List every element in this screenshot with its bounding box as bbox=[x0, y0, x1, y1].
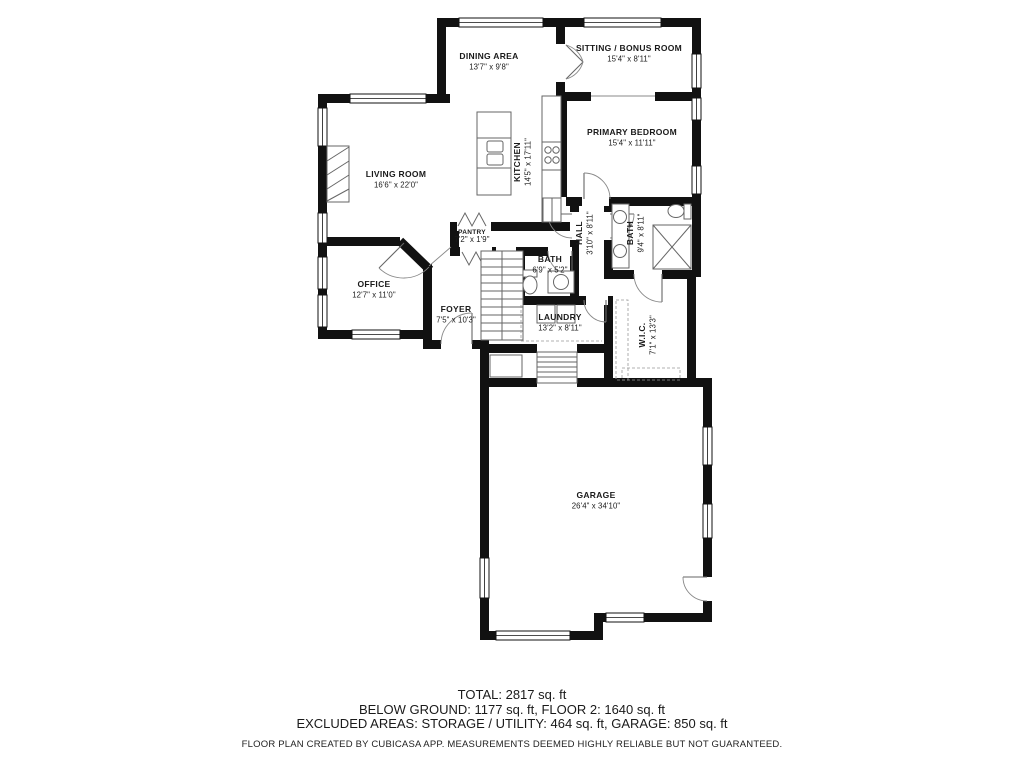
window bbox=[703, 427, 712, 465]
window bbox=[480, 558, 489, 598]
stairs-basement bbox=[537, 352, 577, 383]
window bbox=[318, 213, 327, 243]
toilet-primary-bath bbox=[668, 204, 691, 219]
room-label-kitchen: KITCHEN14'5" x 17'11" bbox=[512, 138, 533, 186]
window bbox=[584, 18, 661, 27]
room-label-pantry: PANTRY7'2" x 1'9" bbox=[454, 229, 489, 244]
storage-closet bbox=[490, 355, 522, 377]
window bbox=[318, 257, 327, 289]
floor-plan-page: DINING AREA13'7" x 9'8"SITTING / BONUS R… bbox=[0, 0, 1024, 768]
window bbox=[692, 98, 701, 120]
window bbox=[318, 108, 327, 146]
window bbox=[692, 166, 701, 194]
room-label-dining-area: DINING AREA13'7" x 9'8" bbox=[459, 51, 518, 72]
door-garage-side bbox=[683, 577, 712, 601]
window bbox=[703, 504, 712, 538]
room-label-sitting-bonus-room: SITTING / BONUS ROOM15'4" x 8'11" bbox=[576, 43, 682, 64]
room-label-office: OFFICE12'7" x 11'0" bbox=[352, 279, 396, 300]
window bbox=[459, 18, 543, 27]
summary-footer: TOTAL: 2817 sq. ft BELOW GROUND: 1177 sq… bbox=[0, 688, 1024, 750]
stairs-main bbox=[481, 251, 523, 340]
kitchen-island bbox=[477, 112, 511, 195]
window bbox=[352, 330, 400, 339]
room-label-garage: GARAGE26'4" x 34'10" bbox=[572, 490, 621, 511]
shower bbox=[653, 225, 691, 269]
room-label-foyer: FOYER7'5" x 10'3" bbox=[436, 304, 476, 325]
room-label-living-room: LIVING ROOM16'6" x 22'0" bbox=[366, 169, 426, 190]
fireplace bbox=[327, 146, 349, 202]
disclaimer-text: FLOOR PLAN CREATED BY CUBICASA APP. MEAS… bbox=[0, 739, 1024, 750]
floors-area-text: BELOW GROUND: 1177 sq. ft, FLOOR 2: 1640… bbox=[0, 703, 1024, 718]
window bbox=[318, 295, 327, 327]
door-wic bbox=[634, 270, 662, 302]
room-label-primary-bedroom: PRIMARY BEDROOM15'4" x 11'11" bbox=[587, 127, 677, 148]
kitchen-counter bbox=[542, 96, 561, 222]
opening-foyer-kitchen bbox=[429, 247, 451, 266]
floor-plan-drawing: DINING AREA13'7" x 9'8"SITTING / BONUS R… bbox=[0, 0, 1024, 768]
window bbox=[606, 613, 644, 622]
excluded-area-text: EXCLUDED AREAS: STORAGE / UTILITY: 464 s… bbox=[0, 717, 1024, 732]
room-label-wic: W.I.C.7'1" x 13'3" bbox=[637, 315, 658, 355]
room-label-bath-small: BATH6'9" x 5'2" bbox=[532, 254, 567, 275]
window bbox=[350, 94, 426, 103]
total-area-text: TOTAL: 2817 sq. ft bbox=[0, 688, 1024, 703]
window bbox=[496, 631, 570, 640]
window bbox=[692, 54, 701, 88]
door-primary-bedroom bbox=[582, 173, 610, 206]
